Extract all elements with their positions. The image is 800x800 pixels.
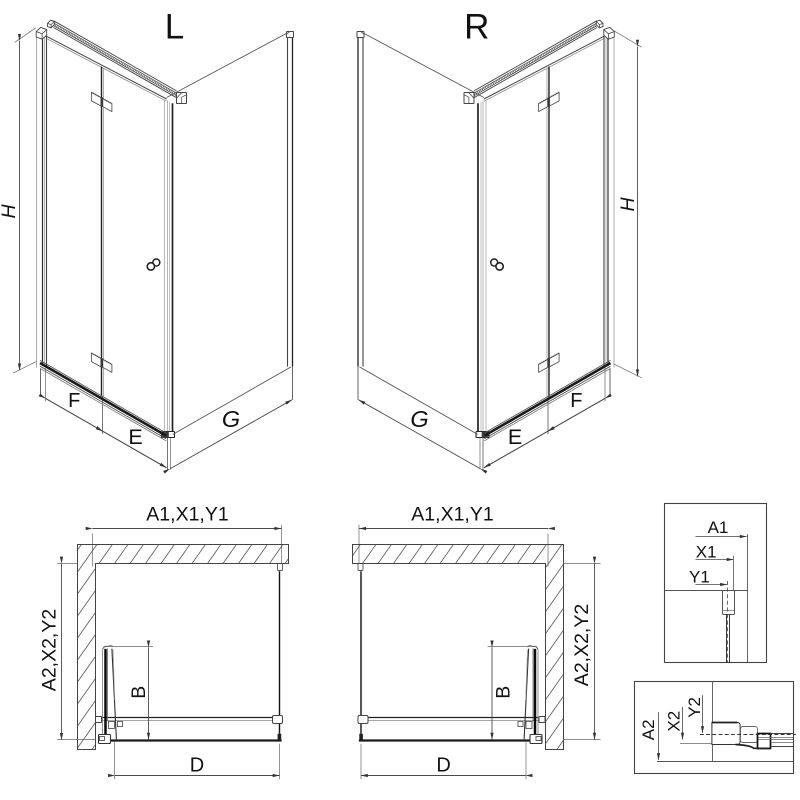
svg-text:Y1: Y1 xyxy=(689,567,710,586)
svg-text:A2: A2 xyxy=(639,719,658,740)
svg-text:R: R xyxy=(464,8,489,47)
svg-text:B: B xyxy=(492,686,514,699)
svg-text:A1,X1,Y1: A1,X1,Y1 xyxy=(411,503,493,525)
svg-text:E: E xyxy=(508,425,522,449)
svg-text:B: B xyxy=(128,686,150,699)
svg-text:L: L xyxy=(165,8,184,47)
svg-text:Y2: Y2 xyxy=(685,697,704,718)
svg-text:D: D xyxy=(436,755,450,777)
svg-text:H: H xyxy=(617,197,639,212)
svg-text:G: G xyxy=(222,406,240,432)
svg-text:G: G xyxy=(410,406,428,432)
svg-text:H: H xyxy=(0,204,20,219)
svg-text:X1: X1 xyxy=(696,543,717,562)
svg-text:A1,X1,Y1: A1,X1,Y1 xyxy=(146,503,228,525)
svg-text:D: D xyxy=(190,755,204,777)
svg-text:F: F xyxy=(68,390,80,412)
svg-text:A2,X2,Y2: A2,X2,Y2 xyxy=(571,604,593,686)
svg-text:F: F xyxy=(570,390,582,412)
svg-text:A1: A1 xyxy=(708,518,729,537)
svg-text:E: E xyxy=(128,425,142,449)
svg-text:X2: X2 xyxy=(665,711,684,732)
svg-text:A2,X2,Y2: A2,X2,Y2 xyxy=(38,609,60,691)
